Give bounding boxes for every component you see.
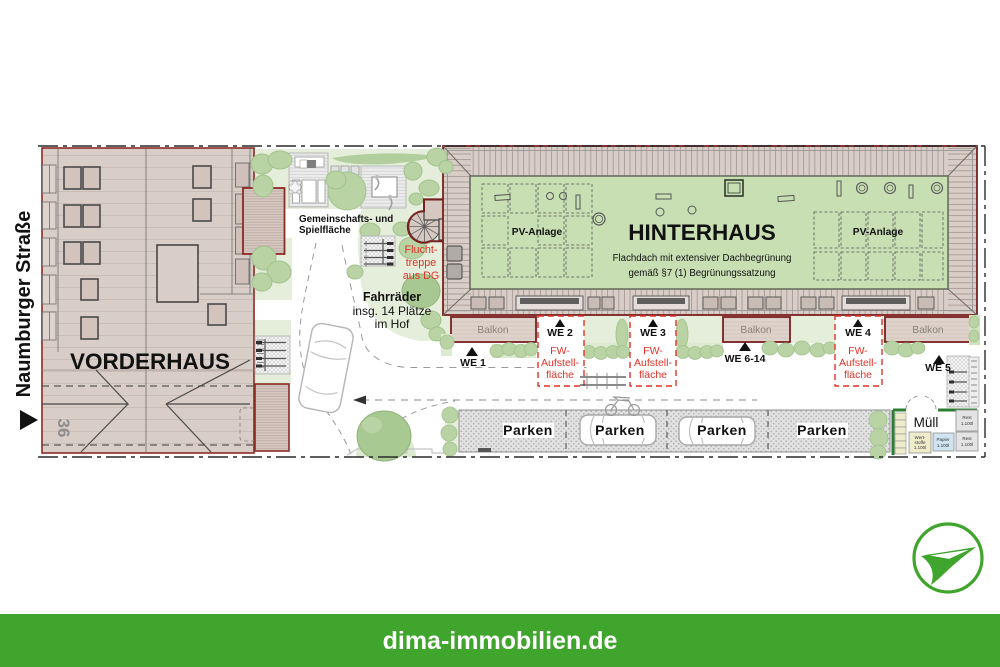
svg-text:Aufstell-: Aufstell- [634, 357, 672, 369]
svg-text:36: 36 [54, 419, 73, 438]
svg-text:im Hof: im Hof [375, 317, 410, 331]
svg-text:gemäß §7 (1) Begrünungssatzung: gemäß §7 (1) Begrünungssatzung [628, 268, 775, 279]
svg-text:WE 4: WE 4 [845, 327, 871, 339]
svg-text:1.100l: 1.100l [914, 445, 926, 450]
svg-text:WE 3: WE 3 [640, 327, 666, 339]
svg-text:PV-Anlage: PV-Anlage [512, 227, 563, 238]
svg-text:Parken: Parken [503, 422, 553, 438]
svg-text:WE 2: WE 2 [547, 327, 573, 339]
svg-text:Rest: Rest [962, 436, 972, 441]
svg-text:WE 1: WE 1 [460, 357, 486, 369]
svg-text:fläche: fläche [546, 369, 574, 381]
svg-text:Müll: Müll [914, 415, 939, 430]
svg-text:Fahrräder: Fahrräder [363, 290, 421, 304]
svg-text:Rest: Rest [962, 415, 972, 420]
svg-text:1.100l: 1.100l [961, 442, 973, 447]
svg-text:FW-: FW- [643, 345, 663, 357]
svg-text:Parken: Parken [797, 422, 847, 438]
svg-text:VORDERHAUS: VORDERHAUS [70, 349, 230, 374]
svg-text:Balkon: Balkon [740, 325, 771, 336]
svg-text:Balkon: Balkon [912, 325, 943, 336]
svg-text:HINTERHAUS: HINTERHAUS [628, 220, 776, 245]
svg-text:Parken: Parken [595, 422, 645, 438]
svg-text:treppe: treppe [406, 257, 437, 269]
svg-text:Aufstell-: Aufstell- [541, 357, 579, 369]
svg-text:1.100l: 1.100l [961, 421, 973, 426]
svg-text:fläche: fläche [844, 369, 872, 381]
svg-text:Aufstell-: Aufstell- [839, 357, 877, 369]
svg-text:Flachdach mit extensiver Dachb: Flachdach mit extensiver Dachbegrünung [613, 253, 792, 264]
svg-text:fläche: fläche [639, 369, 667, 381]
svg-text:FW-: FW- [550, 345, 570, 357]
svg-text:Papier: Papier [936, 437, 950, 442]
svg-text:Parken: Parken [697, 422, 747, 438]
svg-text:Flucht-: Flucht- [405, 244, 438, 256]
svg-text:Naumburger Straße: Naumburger Straße [13, 211, 35, 398]
svg-text:aus DG: aus DG [403, 270, 440, 282]
svg-text:insg. 14 Plätze: insg. 14 Plätze [353, 304, 432, 318]
svg-text:Balkon: Balkon [477, 325, 508, 336]
svg-text:Spielfläche: Spielfläche [299, 225, 351, 236]
svg-text:PV-Anlage: PV-Anlage [853, 227, 904, 238]
svg-text:FW-: FW- [848, 345, 868, 357]
svg-text:dima-immobilien.de: dima-immobilien.de [383, 627, 618, 655]
svg-text:WE 6-14: WE 6-14 [725, 353, 766, 365]
svg-text:Gemeinschafts- und: Gemeinschafts- und [299, 214, 393, 225]
svg-text:WE 5: WE 5 [925, 362, 951, 374]
svg-text:1.100l: 1.100l [937, 443, 949, 448]
